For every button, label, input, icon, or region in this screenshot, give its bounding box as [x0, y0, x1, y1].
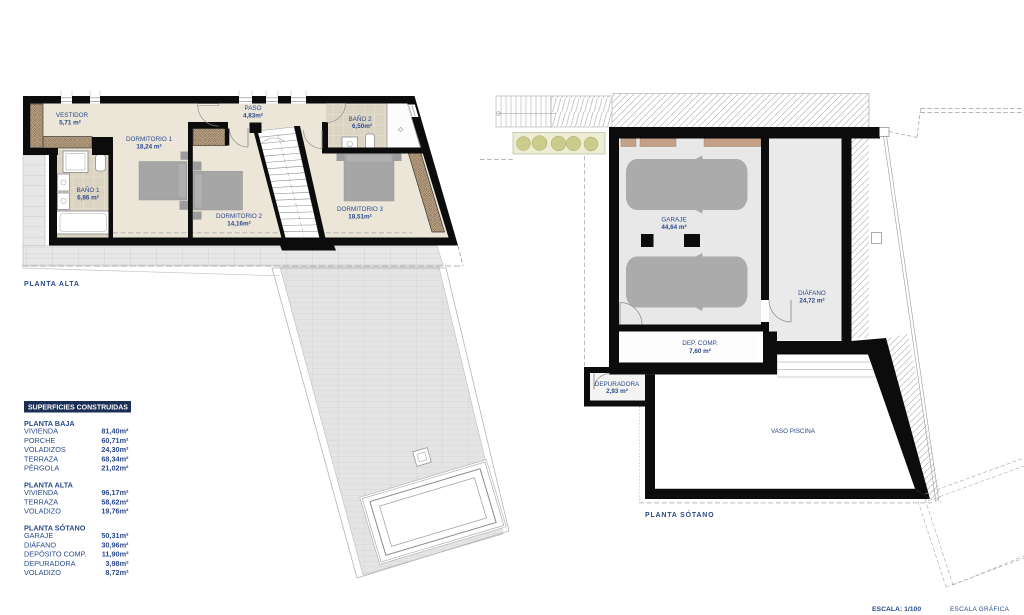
svg-text:DEPURADORA: DEPURADORA — [595, 381, 640, 388]
svg-text:3,98m²: 3,98m² — [105, 559, 129, 568]
svg-text:4,83m²: 4,83m² — [243, 113, 263, 120]
svg-text:VESTIDOR: VESTIDOR — [56, 112, 89, 119]
svg-text:68,34m²: 68,34m² — [101, 454, 129, 463]
svg-text:11,90m²: 11,90m² — [102, 550, 129, 559]
svg-text:50,31m²: 50,31m² — [101, 531, 129, 540]
svg-text:DEP. COMP.: DEP. COMP. — [682, 340, 718, 347]
svg-text:6,50m²: 6,50m² — [352, 123, 372, 130]
svg-text:VOLADIZO: VOLADIZO — [24, 568, 61, 577]
svg-text:ESCALA GRÁFICA: ESCALA GRÁFICA — [950, 604, 1010, 613]
svg-text:BAÑO 1: BAÑO 1 — [76, 185, 100, 194]
svg-text:VOLADIZOS: VOLADIZOS — [24, 445, 66, 454]
svg-text:60,71m²: 60,71m² — [101, 436, 129, 445]
svg-text:24,72 m²: 24,72 m² — [799, 298, 824, 305]
svg-text:DORMITORIO 1: DORMITORIO 1 — [126, 136, 173, 143]
svg-text:DEPURADORA: DEPURADORA — [24, 559, 76, 568]
svg-text:19,76m²: 19,76m² — [101, 507, 129, 516]
svg-text:96,17m²: 96,17m² — [101, 488, 129, 497]
svg-text:24,30m²: 24,30m² — [101, 445, 129, 454]
svg-text:PASO: PASO — [244, 105, 261, 112]
svg-text:58,62m²: 58,62m² — [101, 497, 129, 506]
svg-text:21,02m²: 21,02m² — [101, 464, 129, 473]
svg-text:DIÁFANO: DIÁFANO — [798, 288, 826, 297]
svg-text:14,16m²: 14,16m² — [227, 221, 250, 228]
svg-text:TERRAZA: TERRAZA — [24, 497, 58, 506]
svg-text:7,60 m²: 7,60 m² — [689, 348, 711, 355]
svg-text:DORMITORIO 3: DORMITORIO 3 — [337, 206, 384, 213]
svg-text:18,51m²: 18,51m² — [348, 214, 371, 221]
svg-text:ESCALA: 1/100: ESCALA: 1/100 — [872, 606, 921, 613]
svg-text:8,72m²: 8,72m² — [105, 568, 129, 577]
svg-text:5,71 m²: 5,71 m² — [59, 119, 81, 126]
svg-text:DIÁFANO: DIÁFANO — [24, 540, 56, 549]
svg-text:GARAJE: GARAJE — [661, 217, 686, 224]
svg-text:BAÑO 2: BAÑO 2 — [348, 114, 372, 123]
svg-text:DORMITORIO 2: DORMITORIO 2 — [216, 213, 263, 220]
svg-text:DEPÓSITO COMP.: DEPÓSITO COMP. — [24, 550, 87, 559]
svg-text:TERRAZA: TERRAZA — [24, 454, 58, 463]
svg-text:GARAJE: GARAJE — [24, 531, 53, 540]
svg-text:81,40m²: 81,40m² — [101, 427, 129, 436]
svg-text:44,64 m²: 44,64 m² — [661, 224, 686, 231]
svg-text:2,93 m²: 2,93 m² — [606, 388, 628, 395]
svg-text:PLANTA ALTA: PLANTA ALTA — [24, 281, 80, 288]
svg-text:6,86 m²: 6,86 m² — [77, 194, 99, 201]
svg-text:VASO PISCINA: VASO PISCINA — [771, 428, 816, 435]
svg-text:PÉRGOLA: PÉRGOLA — [24, 464, 59, 473]
svg-text:SUPERFICIES CONSTRUIDAS: SUPERFICIES CONSTRUIDAS — [28, 405, 128, 412]
svg-text:30,96m²: 30,96m² — [101, 540, 129, 549]
svg-text:VIVIENDA: VIVIENDA — [24, 427, 58, 436]
svg-text:PORCHE: PORCHE — [24, 436, 55, 445]
svg-text:18,24 m²: 18,24 m² — [136, 144, 161, 151]
svg-text:PLANTA SÓTANO: PLANTA SÓTANO — [645, 510, 714, 519]
svg-text:VOLADIZO: VOLADIZO — [24, 507, 61, 516]
svg-text:VIVIENDA: VIVIENDA — [24, 488, 58, 497]
